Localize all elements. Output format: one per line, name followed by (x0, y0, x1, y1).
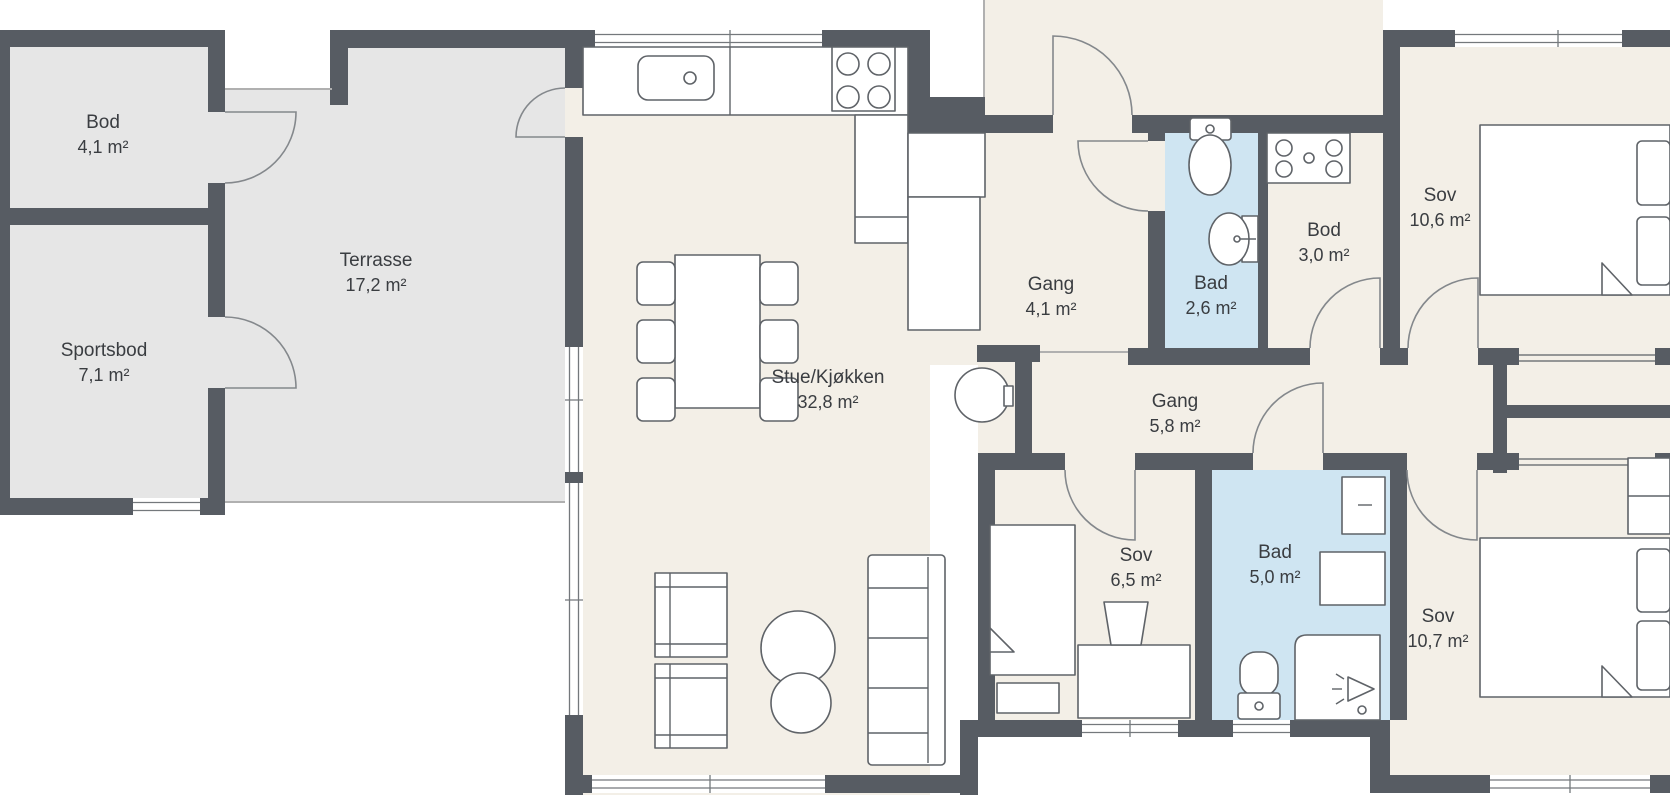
room-area: 3,0 m² (1298, 243, 1349, 267)
nightstand-bedroom2 (997, 683, 1059, 713)
window-bedroom1-top (1455, 30, 1622, 47)
window-bath2-south (1233, 720, 1290, 737)
room-label-sportsbod: Sportsbod 7,1 m² (61, 339, 148, 387)
room-label-gang-1: Gang 4,1 m² (1025, 273, 1076, 321)
room-name: Gang (1025, 273, 1076, 297)
coffee-table-small (771, 673, 831, 733)
room-label-stue-kjokken: Stue/Kjøkken 32,8 m² (772, 366, 885, 414)
window-living-south (592, 775, 825, 793)
outdoor-floors (0, 30, 565, 515)
washer-counter-icon (1267, 133, 1350, 183)
nightstand-bedroom3 (1628, 458, 1670, 534)
window-bedroom3-south (1490, 775, 1650, 793)
room-name: Gang (1149, 390, 1200, 414)
room-name: Sov (1409, 184, 1470, 208)
room-label-bad-1: Bad 2,6 m² (1185, 272, 1236, 320)
stove-icon (832, 47, 895, 111)
room-name: Bad (1249, 541, 1300, 565)
room-name: Bad (1185, 272, 1236, 296)
window-bedroom2-south (1082, 720, 1178, 737)
bath2-cabinet-lower (1320, 552, 1385, 605)
room-label-bod-storage: Bod 4,1 m² (77, 111, 128, 159)
sofa (868, 555, 945, 765)
room-area: 6,5 m² (1110, 568, 1161, 592)
single-bed (990, 525, 1075, 675)
armchair-1 (655, 573, 727, 657)
double-bed-2 (1480, 538, 1670, 697)
room-name: Terrasse (340, 249, 413, 273)
room-name: Stue/Kjøkken (772, 366, 885, 390)
room-area: 32,8 m² (772, 390, 885, 414)
room-label-sov-1: Sov 10,6 m² (1409, 184, 1470, 232)
armchair-2 (655, 664, 727, 748)
room-label-terrasse: Terrasse 17,2 m² (340, 249, 413, 297)
room-name: Sov (1407, 605, 1468, 629)
room-name: Bod (1298, 219, 1349, 243)
room-area: 10,6 m² (1409, 208, 1470, 232)
entry-porch-floor (985, 0, 1383, 133)
window-sportsbod-south (133, 498, 200, 515)
toilet-icon-bath1 (1189, 118, 1231, 195)
room-area: 4,1 m² (77, 135, 128, 159)
sink-icon (638, 56, 714, 100)
dining-table (675, 255, 760, 408)
shower-icon (1295, 635, 1380, 720)
window-kitchen-top (595, 30, 822, 47)
storage-annex-floor (0, 30, 225, 515)
hall2-floor (978, 348, 1507, 470)
tall-cabinets (908, 133, 985, 330)
room-label-gang-2: Gang 5,8 m² (1149, 390, 1200, 438)
room-area: 5,0 m² (1249, 565, 1300, 589)
room-name: Sov (1110, 544, 1161, 568)
room-label-bad-2: Bad 5,0 m² (1249, 541, 1300, 589)
window-living-west-1 (565, 347, 583, 472)
room-area: 17,2 m² (340, 273, 413, 297)
double-bed-1 (1480, 125, 1670, 295)
room-name: Sportsbod (61, 339, 148, 363)
window-living-west-2 (565, 483, 583, 715)
room-name: Bod (77, 111, 128, 135)
bath2-cabinet-upper (1342, 477, 1385, 534)
terrace-floor-left (225, 88, 330, 503)
room-label-bod-inner: Bod 3,0 m² (1298, 219, 1349, 267)
room-area: 10,7 m² (1407, 629, 1468, 653)
room-label-sov-3: Sov 10,7 m² (1407, 605, 1468, 653)
toilet-icon-bath2 (1238, 652, 1280, 719)
room-area: 5,8 m² (1149, 414, 1200, 438)
washbasin-icon-bath1 (1209, 213, 1258, 265)
room-area: 7,1 m² (61, 363, 148, 387)
room-area: 4,1 m² (1025, 297, 1076, 321)
room-area: 2,6 m² (1185, 296, 1236, 320)
floorplan-stage: Bod 4,1 m² Sportsbod 7,1 m² Terrasse 17,… (0, 0, 1670, 800)
room-label-sov-2: Sov 6,5 m² (1110, 544, 1161, 592)
